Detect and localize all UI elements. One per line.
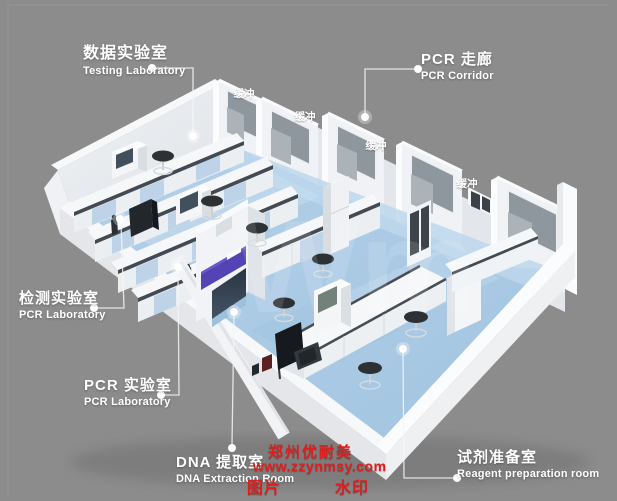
watermark-tag-left: 图片: [247, 474, 281, 498]
floor-watermark-text: Wm: [235, 193, 477, 340]
callout-reagent-preparation-room: 试剂准备室 Reagent preparation room: [457, 450, 599, 480]
callout-reagent-preparation-room-en: Reagent preparation room: [457, 469, 599, 481]
callout-pcr-corridor: PCR 走廊 PCR Corridor: [421, 52, 494, 82]
callout-pcr-laboratory-en: PCR Laboratory: [84, 397, 172, 409]
callout-detection-laboratory-en: PCR Laboratory: [19, 310, 106, 322]
callout-pcr-corridor-zh: PCR 走廊: [421, 52, 494, 68]
callout-detection-laboratory: 检测实验室 PCR Laboratory: [19, 291, 106, 321]
callout-reagent-preparation-room-zh: 试剂准备室: [457, 450, 599, 466]
callout-pcr-corridor-en: PCR Corridor: [421, 71, 494, 83]
buffer-room-tag: 缓冲: [294, 110, 316, 123]
callout-testing-laboratory-zh: 数据实验室: [83, 46, 185, 63]
buffer-room-tag: 缓冲: [233, 87, 255, 100]
lab-rendering-canvas: Wm 缓冲 缓冲 缓冲 缓冲 数据实验室 Testing Laboratory …: [0, 0, 617, 501]
callout-testing-laboratory-en: Testing Laboratory: [83, 66, 185, 78]
buffer-room-tag: 缓冲: [365, 139, 387, 152]
buffer-room-tag: 缓冲: [456, 177, 478, 190]
callout-testing-laboratory: 数据实验室 Testing Laboratory: [83, 46, 185, 77]
callout-detection-laboratory-zh: 检测实验室: [19, 291, 106, 307]
callout-pcr-laboratory: PCR 实验室 PCR Laboratory: [84, 378, 172, 408]
watermark-url-text: www.zzynmsy.com: [253, 458, 387, 474]
watermark-tag-right: 水印: [335, 474, 369, 498]
callout-pcr-laboratory-zh: PCR 实验室: [84, 378, 172, 394]
